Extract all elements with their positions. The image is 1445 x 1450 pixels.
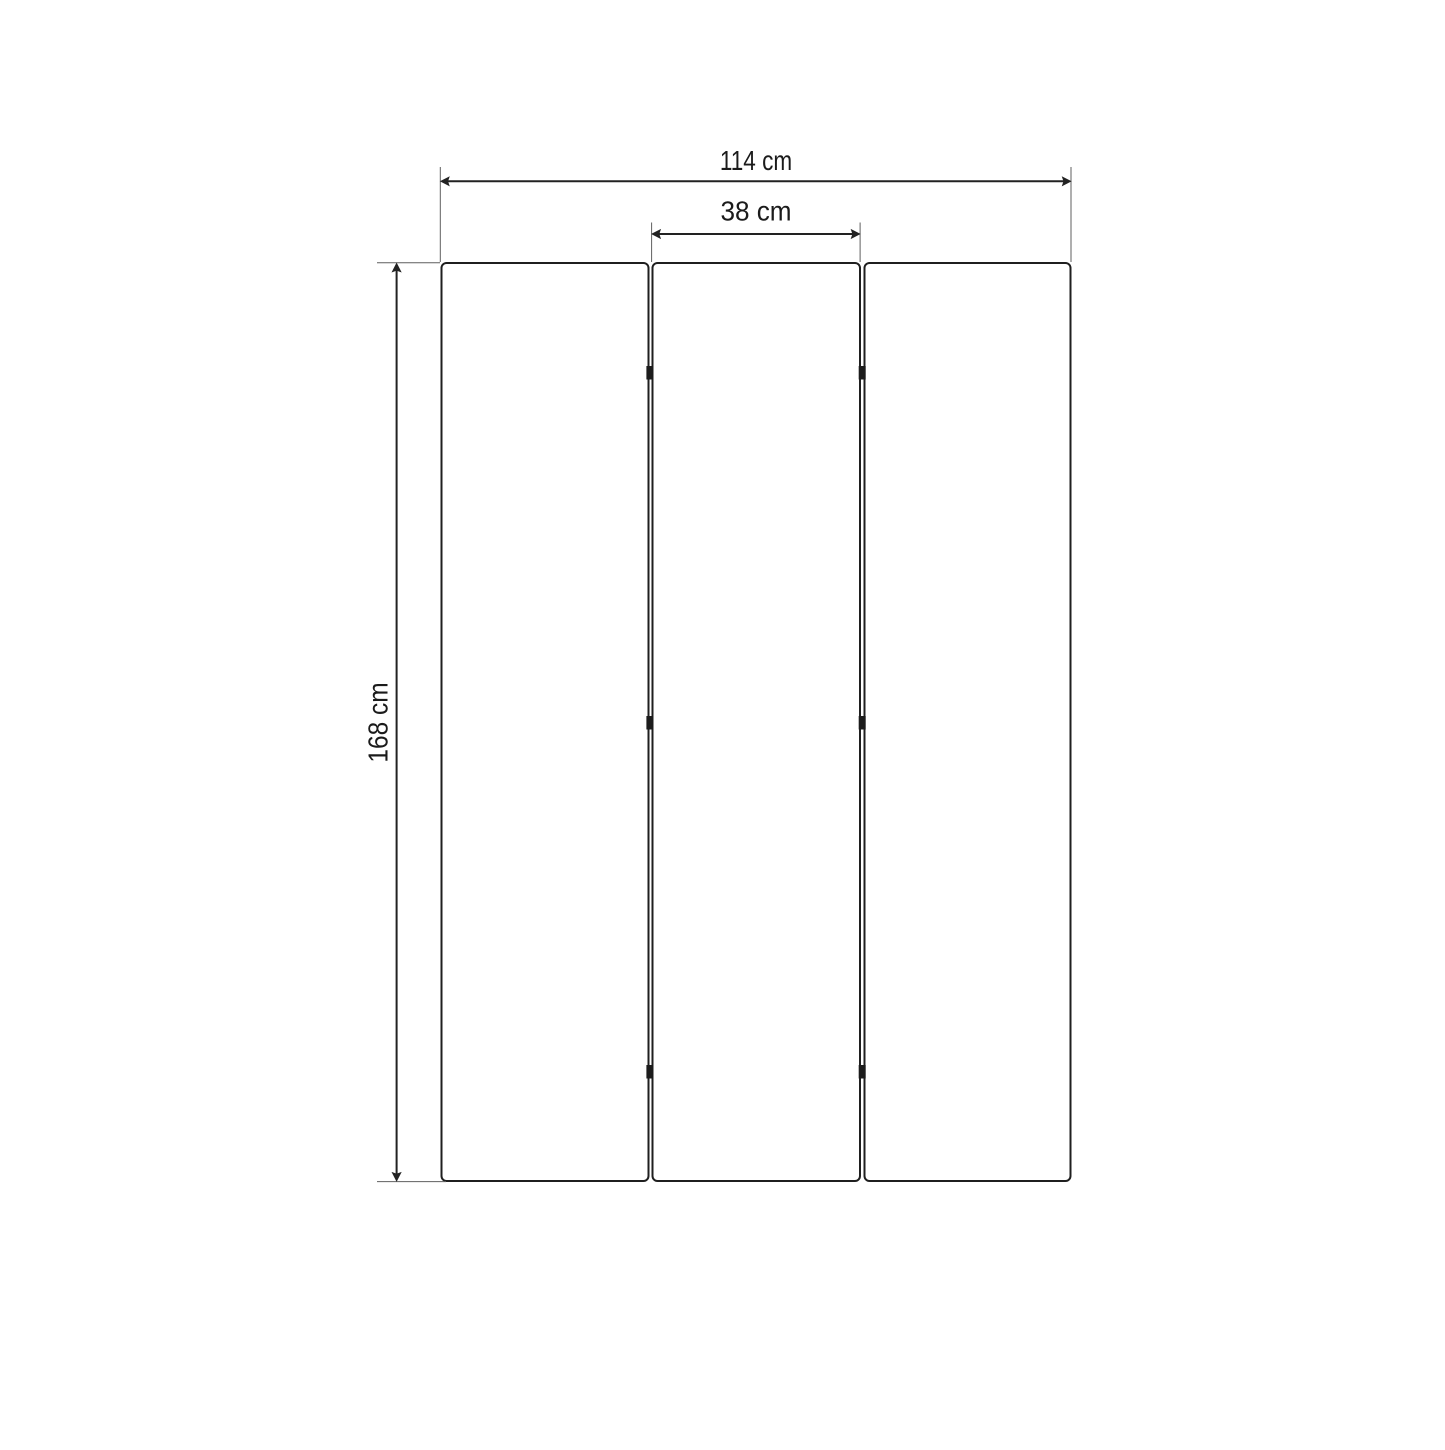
- svg-text:168 cm: 168 cm: [362, 682, 394, 762]
- svg-text:114 cm: 114 cm: [720, 146, 792, 177]
- svg-text:38 cm: 38 cm: [720, 196, 791, 227]
